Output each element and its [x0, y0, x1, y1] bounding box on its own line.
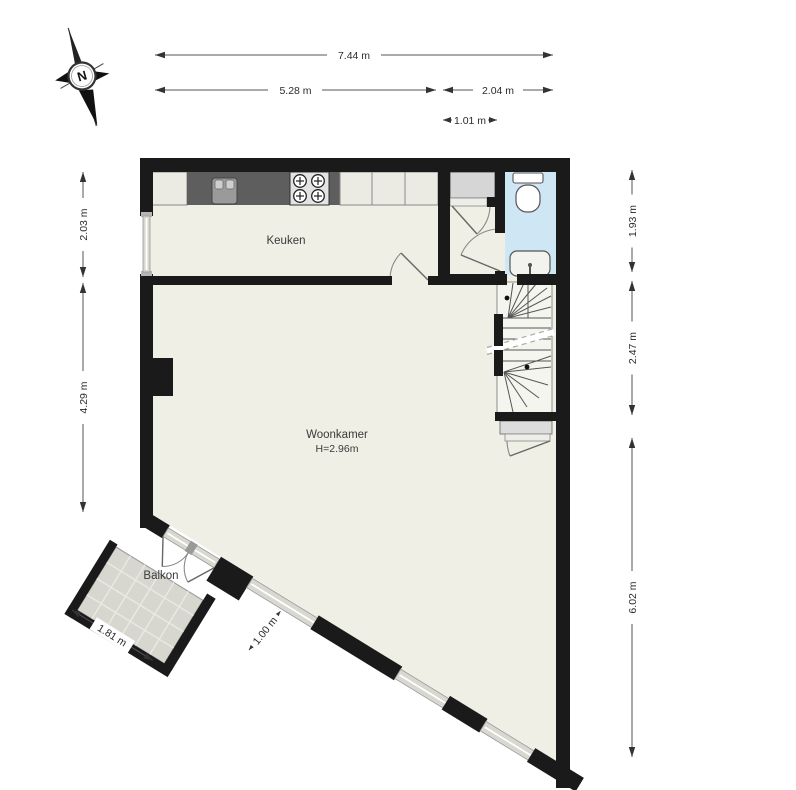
svg-text:1.93 m: 1.93 m [627, 205, 639, 237]
kitchen-label: Keuken [266, 235, 305, 247]
floor-plan-canvas: Keuken Woonkamer H=2.96m Balkon 7.44 m 5… [0, 0, 796, 790]
closet-door-jamb-right [487, 197, 495, 207]
kitchen-cabinet-left [152, 172, 187, 205]
left-window [141, 212, 152, 276]
dim-right-bottom: 6.02 m [625, 438, 639, 757]
living-room-label: Woonkamer [306, 429, 368, 441]
compass-north-point [65, 27, 82, 64]
wall-stair-left-2 [494, 350, 503, 376]
svg-text:2.04 m: 2.04 m [482, 85, 514, 97]
understair-closet [500, 421, 552, 434]
compass-rose: N [42, 20, 122, 133]
wall-left-lower [140, 274, 153, 528]
svg-text:5.28 m: 5.28 m [279, 85, 311, 97]
svg-text:2.47 m: 2.47 m [627, 332, 639, 364]
dim-hall-width: 2.04 m [443, 83, 553, 97]
wall-toilet-left-lower [495, 271, 505, 285]
walkline-dot-bottom [525, 365, 530, 370]
svg-text:6.02 m: 6.02 m [627, 581, 639, 613]
stove [290, 172, 329, 205]
floor-plan-page: Keuken Woonkamer H=2.96m Balkon 7.44 m 5… [0, 0, 796, 790]
living-room-height: H=2.96m [316, 443, 359, 455]
dim-right-top: 1.93 m [625, 170, 639, 272]
kitchen-sink [212, 178, 237, 204]
apartment-floor [147, 160, 568, 775]
dim-total-width: 7.44 m [155, 48, 553, 62]
hand-basin [510, 251, 550, 276]
wall-stair-left-1 [494, 314, 503, 346]
closet-door-frame [450, 198, 487, 206]
svg-text:1.01 m: 1.01 m [454, 115, 486, 127]
wall-right [556, 158, 570, 788]
dim-left-top: 2.03 m [76, 172, 90, 277]
walkline-dot-top [505, 296, 510, 301]
wall-kitchen-bottom [146, 276, 392, 285]
dim-balcony-door: 1.00 m [244, 607, 286, 655]
svg-text:2.03 m: 2.03 m [78, 208, 90, 240]
wall-kitchen-hall [438, 164, 450, 285]
staircase [487, 282, 554, 413]
wall-top [140, 158, 570, 172]
dim-left-bottom: 4.29 m [76, 283, 90, 512]
svg-text:7.44 m: 7.44 m [338, 50, 370, 62]
toilet-fixture [513, 173, 543, 212]
wall-toilet-left-upper [495, 164, 505, 233]
wall-left-upper [140, 158, 153, 216]
balcony [64, 535, 215, 677]
svg-text:4.29 m: 4.29 m [78, 381, 90, 413]
balcony-label: Balkon [143, 570, 178, 582]
understair-door-frame [505, 434, 550, 441]
wall-toilet-bottom [517, 274, 556, 285]
wall-pillar [140, 358, 173, 396]
dim-right-middle: 2.47 m [625, 281, 639, 415]
dim-toilet-width: 1.01 m [443, 113, 497, 127]
closet-door-jamb-left [443, 197, 450, 207]
kitchen-cabinets-right [340, 172, 438, 205]
compass-south-point [79, 87, 103, 128]
wall-under-stair [495, 412, 556, 421]
dim-kitchen-width: 5.28 m [155, 83, 436, 97]
hall-closet [450, 172, 495, 198]
